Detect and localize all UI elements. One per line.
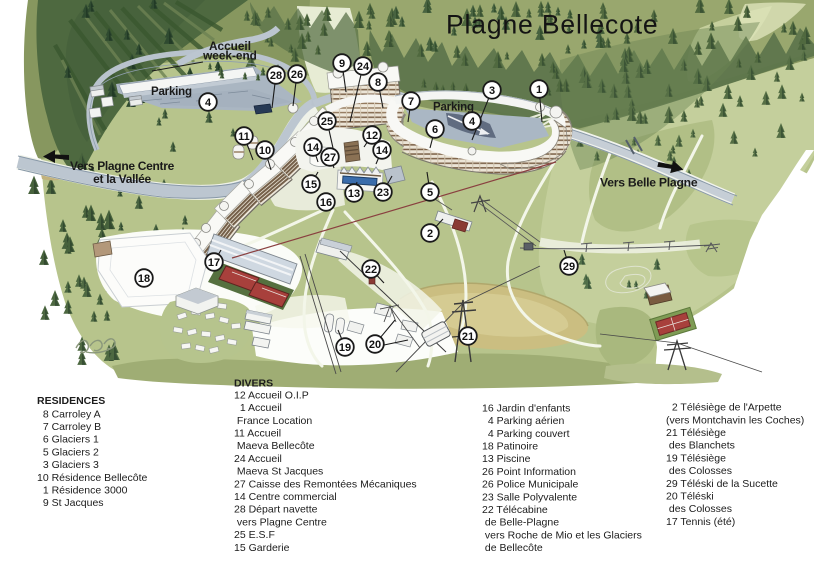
svg-text:23: 23 bbox=[377, 187, 389, 199]
svg-text:Plagne Bellecote: Plagne Bellecote bbox=[446, 10, 659, 40]
svg-text:week-end: week-end bbox=[202, 49, 257, 63]
svg-text:3: 3 bbox=[489, 85, 495, 97]
svg-text:28: 28 bbox=[270, 70, 282, 82]
svg-text:9: 9 bbox=[339, 58, 345, 70]
svg-text:16: 16 bbox=[320, 197, 332, 209]
svg-text:1: 1 bbox=[536, 84, 542, 96]
svg-text:4: 4 bbox=[469, 116, 476, 128]
svg-text:24: 24 bbox=[357, 61, 370, 73]
svg-text:27: 27 bbox=[324, 152, 336, 164]
svg-text:15: 15 bbox=[305, 179, 317, 191]
svg-text:22: 22 bbox=[365, 264, 377, 276]
svg-text:Vers Belle Plagne: Vers Belle Plagne bbox=[600, 176, 698, 190]
svg-text:17: 17 bbox=[208, 257, 220, 269]
svg-text:10: 10 bbox=[259, 145, 271, 157]
svg-text:26: 26 bbox=[291, 69, 303, 81]
svg-text:7: 7 bbox=[408, 96, 414, 108]
svg-text:5: 5 bbox=[427, 187, 433, 199]
svg-text:et la Vallée: et la Vallée bbox=[93, 172, 151, 186]
svg-text:13: 13 bbox=[348, 188, 360, 200]
svg-text:20: 20 bbox=[369, 339, 381, 351]
svg-text:6: 6 bbox=[432, 124, 438, 136]
svg-text:2: 2 bbox=[427, 228, 433, 240]
svg-text:Parking: Parking bbox=[433, 102, 474, 114]
svg-text:DIVERS: DIVERS bbox=[234, 378, 273, 390]
svg-text:21: 21 bbox=[462, 331, 474, 343]
svg-text:RESIDENCES: RESIDENCES bbox=[37, 395, 105, 407]
svg-text:8: 8 bbox=[375, 77, 381, 89]
svg-text:Parking: Parking bbox=[151, 86, 192, 98]
svg-text:18: 18 bbox=[138, 273, 150, 285]
svg-text:12: 12 bbox=[366, 130, 378, 142]
svg-text:25: 25 bbox=[321, 116, 333, 128]
svg-text:4: 4 bbox=[205, 97, 212, 109]
svg-text:11: 11 bbox=[238, 131, 250, 143]
svg-text:19: 19 bbox=[339, 342, 351, 354]
svg-text:14: 14 bbox=[376, 145, 389, 157]
svg-text:29: 29 bbox=[563, 261, 575, 273]
svg-text:14: 14 bbox=[307, 142, 320, 154]
svg-text:Vers Plagne Centre: Vers Plagne Centre bbox=[70, 159, 175, 173]
